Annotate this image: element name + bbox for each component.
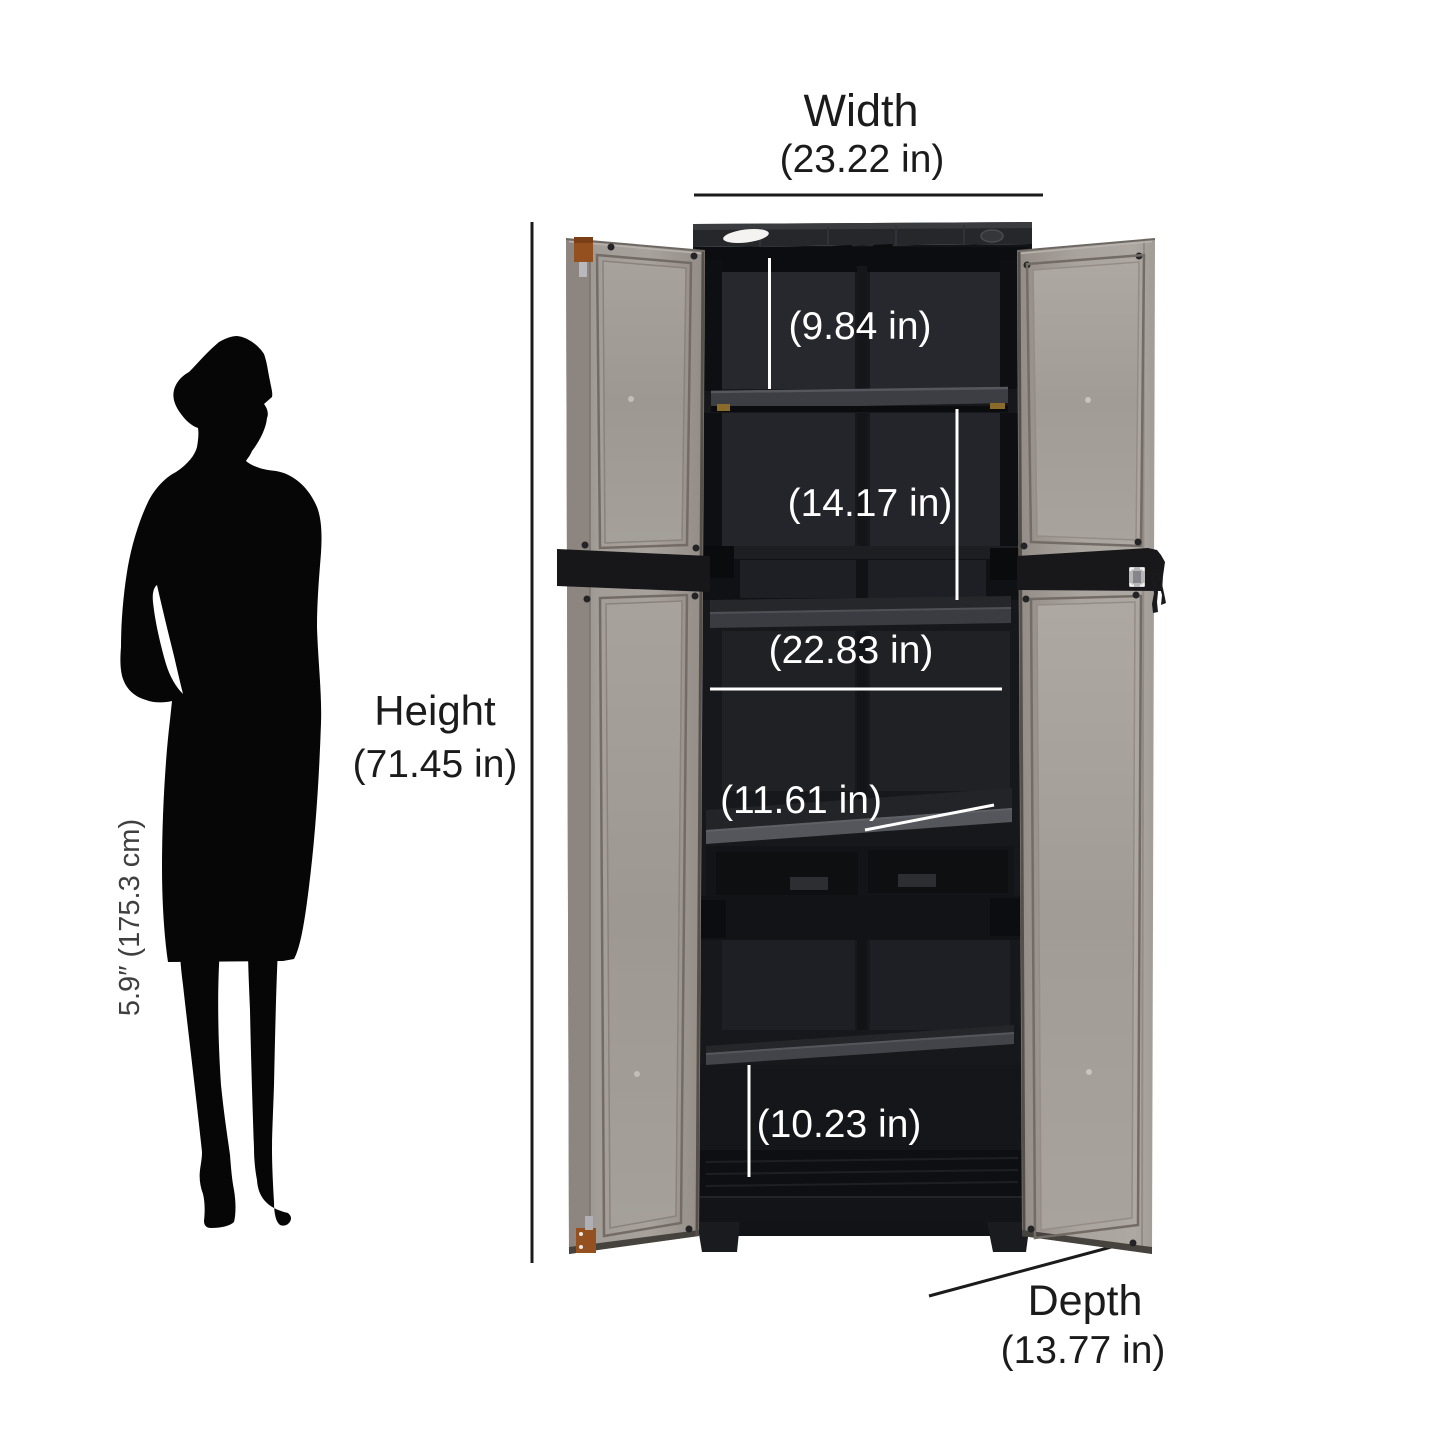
svg-text:(13.77 in): (13.77 in) [1001, 1329, 1166, 1372]
svg-text:Width: Width [803, 85, 918, 136]
svg-text:(14.17 in): (14.17 in) [788, 482, 953, 525]
svg-text:(11.61 in): (11.61 in) [720, 779, 882, 822]
svg-text:5.9″ (175.3 cm): 5.9″ (175.3 cm) [114, 819, 146, 1016]
svg-text:(71.45 in): (71.45 in) [353, 743, 518, 786]
svg-text:(22.83 in): (22.83 in) [769, 629, 934, 672]
svg-text:(10.23 in): (10.23 in) [757, 1103, 922, 1146]
svg-text:Height: Height [374, 687, 496, 734]
svg-text:(23.22 in): (23.22 in) [780, 138, 945, 181]
svg-text:Depth: Depth [1028, 1277, 1143, 1325]
svg-text:(9.84 in): (9.84 in) [788, 305, 931, 348]
